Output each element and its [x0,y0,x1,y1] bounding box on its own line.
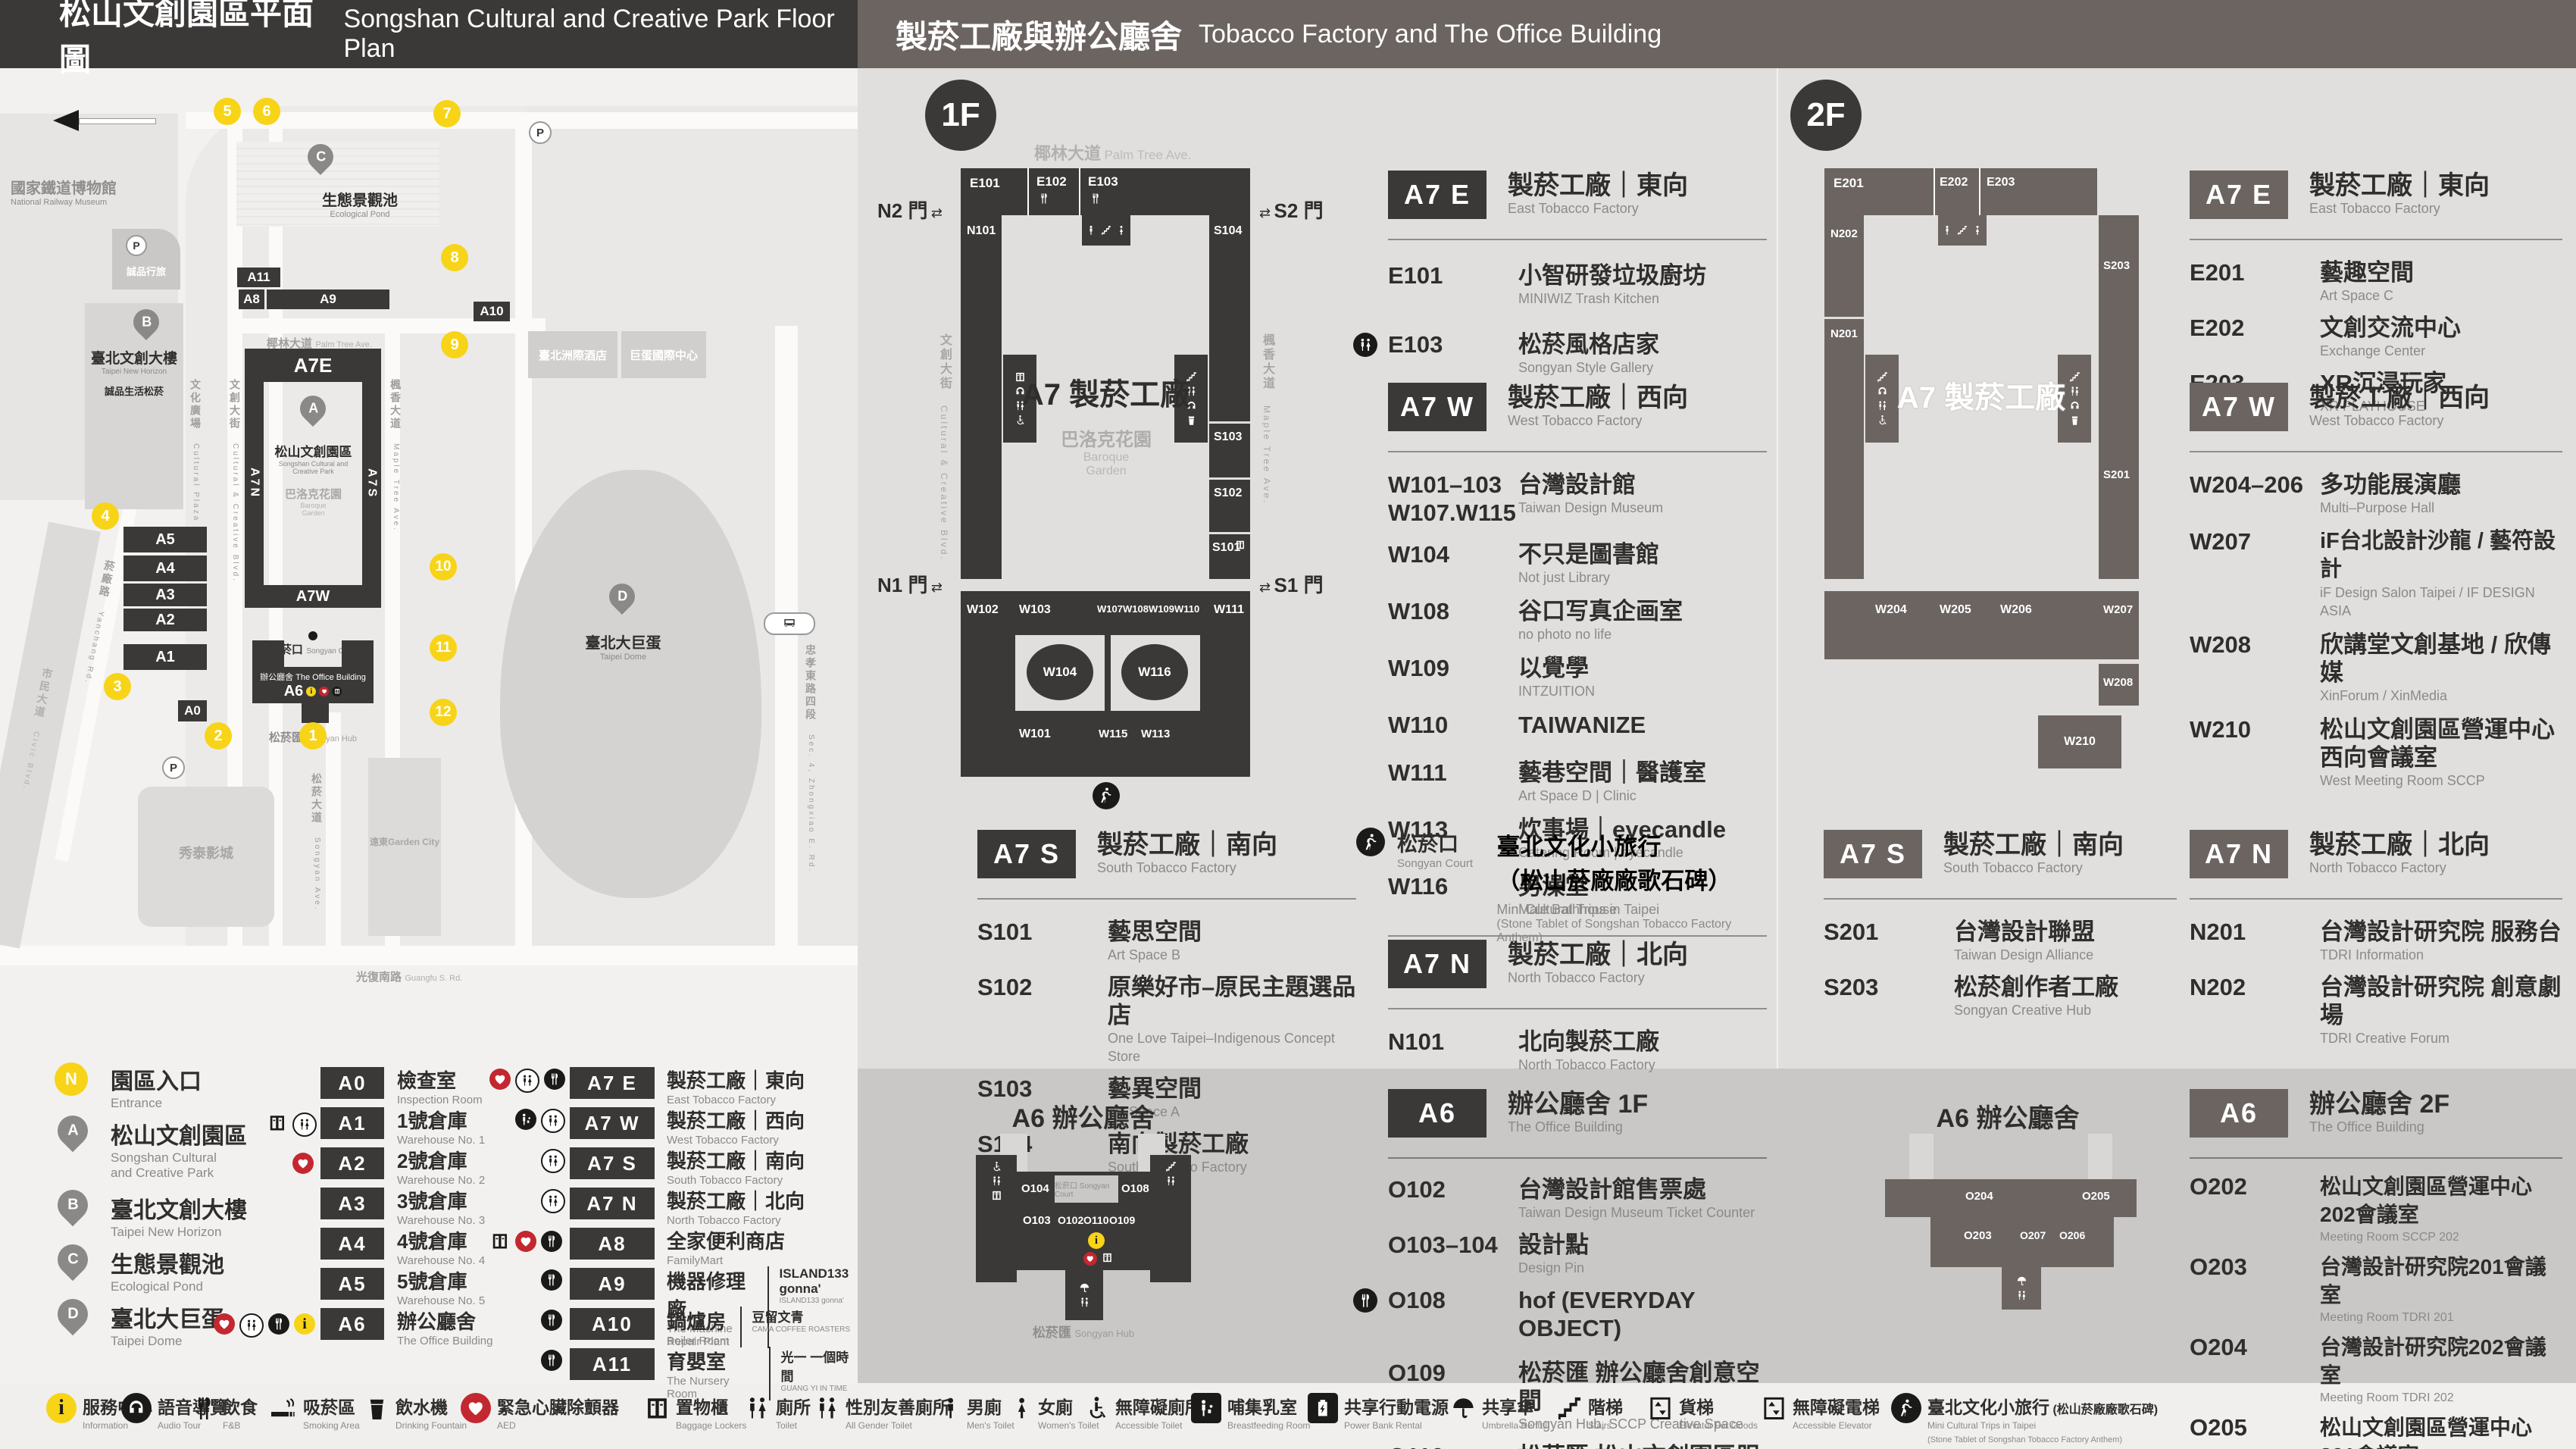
maple-label-1f: 楓香大道 Maple Tree Ave. [1258,333,1276,505]
map2f-bottom-band [1824,591,2099,659]
restaurant-icon [1353,1288,1377,1313]
legend-a7e-label: 製菸工廠｜東向East Tobacco Factory [667,1066,805,1106]
road-v-zhongxiao [775,326,798,946]
all-gender-toilet-icon [812,1393,841,1423]
legend-badge-a7n: A7 N [570,1188,655,1219]
facility-item: 無障礙電梯Accessible Elevator [1759,1393,1880,1432]
room-e102: E102 [1036,174,1067,189]
entrance-7: 7 [433,100,461,127]
legend-a5-label: 5號倉庫Warehouse No. 5 [397,1266,485,1307]
aed-icon [515,1231,536,1252]
guangfu-label: 光復南路 Guangfu S. Rd. [356,969,462,984]
map1f-col-gap [1209,477,1250,480]
legend-a6-icons: i [214,1313,315,1338]
facility-item: 哺集乳室Breastfeeding Room [1191,1393,1310,1432]
accessible-toilet-icon [1082,1393,1111,1423]
badge-a7w-2f: A7 W [2190,383,2288,431]
room-o207: O207 [2020,1229,2046,1241]
a6-1f-court-inset: 松菸口 Songyan Court [1055,1175,1118,1203]
map2f-w210-block: W210 [2038,715,2121,768]
a6-1f-left-wing [976,1155,1017,1282]
toilet-icon [515,1069,539,1093]
legend-pin-d-label: 臺北大巨蛋Taipei Dome [111,1300,224,1349]
showtime-label: 秀泰影城 [145,843,267,862]
room-w107: W107 [1097,603,1123,615]
entrance-6: 6 [253,98,280,125]
room-w110: W110 [1174,603,1199,615]
map1f-col-gap [1209,421,1250,424]
room-n202: N202 [1830,227,1858,240]
facility-item: 共享行動電源Power Bank Rental [1308,1393,1449,1432]
room-w109: W109 [1149,603,1174,615]
section-2f-a7e: A7 E 製菸工廠｜東向East Tobacco Factory E201藝趣空… [2190,171,2562,415]
legend-badge-a3: A3 [320,1188,384,1219]
legend-a7s-label: 製菸工廠｜南向South Tobacco Factory [667,1146,805,1187]
legend-a10-label: 鍋爐房Boiler Room 豆留文青CAMA COFFEE ROASTERS [667,1307,850,1347]
section-1f-a7n: A7 N 製菸工廠｜北向North Tobacco Factory N101北向… [1388,940,1767,1074]
list-item: S101藝思空間Art Space B [977,918,1356,964]
legend-a9-icons [541,1269,562,1291]
legend-entrance-label: 園區入口Entrance [111,1062,202,1111]
room-o104: O104 [1021,1182,1049,1195]
songyan-court-icon [1093,782,1120,809]
fnb-icon [189,1393,218,1423]
map2f-top-stub [1938,215,1987,246]
legend-badge-a2: A2 [320,1147,384,1179]
a6-court-label: 松菸口 Songyan Court [1055,1179,1118,1199]
list-item: O108hof (EVERYDAY OBJECT) [1388,1286,1767,1342]
railway-museum-label: 國家鐵道博物館 National Railway Museum [11,176,117,207]
legend-badge-a4: A4 [320,1228,384,1260]
divider [977,898,1356,900]
room-o205: O205 [2082,1190,2110,1203]
map1f-gate-road [947,579,1265,591]
divider [2190,898,2562,900]
eslite-hotel-block [112,229,180,289]
room-w104-oval: W104 [1027,644,1093,700]
facility-item: 緊急心臟除顫器AED [461,1393,619,1432]
badge-a7n: A7 N [1388,940,1487,988]
room-e101: E101 [970,176,1000,191]
header-right-title-en: Tobacco Factory and The Office Building [1199,20,1662,49]
header-left-title-en: Songshan Cultural and Creative Park Floo… [343,5,858,64]
divider [2190,1157,2562,1159]
new-horizon-block [85,303,183,509]
entrance-9: 9 [441,331,468,358]
legend-pin-b: B [52,1184,95,1227]
room-w101: W101 [1019,728,1051,741]
toilet-icon [541,1189,565,1213]
office-stub [302,703,329,723]
aed-icon [461,1393,491,1423]
a6-2f-pillar [1909,1134,1934,1184]
toilet-icon [541,1149,565,1173]
legend-a2-label: 2號倉庫Warehouse No. 2 [397,1146,485,1187]
room-o109: O109 [1109,1214,1135,1226]
room-w102: W102 [967,603,999,617]
legend-a0-label: 檢查室Inspection Room [397,1066,483,1106]
divider [1388,451,1767,452]
lockers-icon [642,1393,671,1423]
list-item: E101 小智研發垃圾廚坊MINIWIZ Trash Kitchen [1388,261,1767,308]
room-o204: O204 [1965,1190,1993,1203]
gate-s1: ⇄ S1 門 [1259,570,1324,598]
map1f-divider [1079,168,1080,215]
entrance-12: 12 [430,699,457,726]
facility-item: 男廁Men's Toilet [938,1393,1014,1432]
floor-1f-circle: 1F [925,80,996,151]
drinking-fountain-icon [362,1393,391,1423]
room-w108: W108 [1123,603,1149,615]
block-a7e: A7E [245,349,381,382]
park-pin-label: 松山文創園區 Songshan Cultural and Creative Pa… [255,441,372,517]
locker-icon [267,1113,288,1134]
facility-item: 階梯Stairs [1555,1393,1623,1432]
list-item: W110TAIWANIZE [1388,711,1767,739]
legend-badge-a0: A0 [320,1067,384,1099]
aed-icon [214,1313,235,1335]
badge-a7w: A7 W [1388,383,1487,431]
room-o102: O102 [1058,1214,1083,1226]
palm-ave-label-1f: 椰林大道 Palm Tree Ave. [1034,140,1191,164]
block-a0: A0 [178,700,207,721]
room-w206: W206 [2000,603,2032,617]
list-item: S203松菸創作者工廠Songyan Creative Hub [1824,973,2177,1019]
a6-2f-pillar [2088,1134,2112,1184]
womens-toilet-icon [1009,1393,1035,1423]
map2f-divider [1934,168,1935,215]
cultural-trip-icon [1891,1393,1921,1423]
block-a1: A1 [123,644,207,670]
legend-a7n-label: 製菸工廠｜北向North Tobacco Factory [667,1186,805,1227]
badge-a6-2f: A6 [2190,1089,2288,1138]
entrance-10: 10 [430,553,457,581]
section-2f-a7s: A7 S 製菸工廠｜南向South Tobacco Factory S201台灣… [1824,830,2177,1019]
facility-item: 臺北文化小旅行 (松山菸廠廠歌石碑) Mini Cultural Trips i… [1891,1393,2158,1446]
list-item: W207iF台北設計沙龍 / 藝符設計iF Design Salon Taipe… [2190,527,2562,620]
list-item: W108谷口写真企画室no photo no life [1388,597,1767,643]
compass-north-icon [53,110,79,131]
list-item: O203台灣設計研究院201會議室Meeting Room TDRI 201 [2190,1253,2562,1327]
toilet-icon [1353,333,1377,357]
legend-badge-a7e: A7 E [570,1067,655,1099]
songyan-court-icon [1356,828,1385,856]
toilet-icon [292,1113,317,1137]
legend-pin-c: C [52,1238,95,1282]
stairs-icon [1555,1393,1583,1423]
legend-pin-d: D [52,1293,95,1336]
legend-a7s-icons [541,1149,565,1173]
legend-a2-icons [292,1153,314,1174]
map1f-top-stub [1082,215,1130,246]
a6-2f-bottom-bar [1930,1217,2114,1267]
goods-elevator-icon [1646,1393,1674,1423]
gate-n1: N1 門 ⇄ [877,570,943,598]
new-horizon-label: 臺北文創大樓 Taipei New Horizon 誠品生活松菸 [80,347,189,398]
room-n201: N201 [1830,327,1858,340]
list-item: O102台灣設計館售票處Taiwan Design Museum Ticket … [1388,1175,1767,1222]
road-v-songyan [326,712,341,946]
room-s203: S203 [2103,259,2130,272]
legend-badge-a9: A9 [570,1268,655,1300]
mens-toilet-icon [938,1393,964,1423]
locker-icon [1102,1252,1113,1267]
a6-2f-map-title: A6 辦公廳舍 [1909,1097,2106,1134]
list-item: N201台灣設計研究院 服務台TDRI Information [2190,918,2562,964]
list-item: W204–206多功能展演廳Multi–Purpose Hall [2190,471,2562,517]
legend-badge-a7w: A7 W [570,1107,655,1139]
legend-a1-label: 1號倉庫Warehouse No. 1 [397,1106,485,1147]
parking-icon-3: P [529,121,552,144]
room-e201: E201 [1834,176,1864,191]
section-2f-a7n: A7 N 製菸工廠｜北向North Tobacco Factory N201台灣… [2190,830,2562,1047]
block-a9: A9 [267,289,389,309]
room-w111: W111 [1214,603,1244,617]
map1f-center-label: A7 製菸工廠 巴洛克花園 Baroque Garden [1015,370,1197,478]
a6-1f-right-wing [1150,1155,1191,1282]
divider [1388,1157,1767,1159]
bus-stop-icon [764,612,815,635]
legend-a11-icons [541,1350,562,1371]
info-icon: i [46,1393,77,1423]
plaza-label: 文化廣場 Cultural Plaza [188,379,203,522]
map2f-gate-road [1811,579,2152,591]
ccb-label-1f: 文創大街 Cultural & Creative Blvd. [935,333,953,562]
gate-s2: ⇄ S2 門 [1259,196,1324,224]
map1f-left-col [961,215,1002,579]
block-a10: A10 [474,302,510,321]
legend-badge-a8: A8 [570,1228,655,1260]
facility-item: 無障礙廁所Accessible Toilet [1082,1393,1202,1432]
room-o203: O203 [1964,1229,1992,1242]
badge-a7s-2f: A7 S [1824,830,1922,878]
audio-tour-icon [121,1393,152,1423]
header-right-title-cjk: 製菸工廠與辦公廳舍 [896,11,1182,58]
legend-a8-icons [489,1231,562,1252]
room-w208: W208 [2103,676,2133,689]
a6-1f-stub [1065,1270,1103,1320]
badge-a7s: A7 S [977,830,1076,878]
map1f-bottom-block [961,591,1250,777]
office-label: 辦公廳舍 The Office Building [260,671,366,683]
list-item: W101–103W107.W115 台灣設計館Taiwan Design Mus… [1388,471,1767,527]
office-wing-left [252,640,284,669]
entrance-2: 2 [205,722,232,750]
park-map: 國家鐵道博物館 National Railway Museum C 生態景觀池 … [0,68,858,1069]
map2f-divider [1979,168,1980,215]
locker-icon [1235,540,1246,554]
umbrella-icon [1449,1393,1477,1423]
block-a2: A2 [123,609,207,631]
legend-a8-label: 全家便利商店FamilyMart [667,1226,785,1267]
room-w205: W205 [1940,603,1971,617]
legend-a3-label: 3號倉庫Warehouse No. 3 [397,1186,485,1227]
office-wing-right [342,640,374,669]
a6-1f-map-title: A6 辦公廳舍 [985,1097,1182,1134]
facility-item: 性別友善廁所All Gender Toilet [812,1393,950,1432]
badge-a6-1f: A6 [1388,1089,1487,1138]
a6-1f-hub-label: 松菸匯 Songyan Hub [1008,1322,1159,1341]
block-a11: A11 [237,268,280,287]
room-o108: O108 [1121,1182,1149,1195]
list-item: W210松山文創園區營運中心西向會議室West Meeting Room SCC… [2190,715,2562,790]
legend-a7e-icons [489,1069,565,1093]
facility-strip: i 服務中心Information 語音導覽Audio Tour 飲食F&B 吸… [0,1393,2576,1446]
room-w116-oval: W116 [1121,644,1188,700]
section-1f-court: 松菸口Songyan Court 臺北文化小旅行 （松山菸廠廠歌石碑） Mini… [1356,828,1769,945]
legend-a4-label: 4號倉庫Warehouse No. 4 [397,1226,485,1267]
nursing-icon [515,1109,536,1130]
entrance-5: 5 [214,98,241,125]
facility-item: 飲食F&B [189,1393,258,1432]
maple-label: 楓香大道 Maple Tree Ave. [388,379,403,532]
locker-icon [332,687,342,696]
locker-icon [489,1231,511,1252]
legend-a10-icons [541,1310,562,1331]
room-o103: O103 [1023,1214,1051,1227]
divider [1824,898,2177,900]
floor-plan-poster: 松山文創園區平面圖 Songshan Cultural and Creative… [0,0,2576,1449]
map1f-right-col [1209,215,1250,579]
list-item: S102原樂好市–原民主題選品店One Love Taipei–Indigeno… [977,973,1356,1066]
legend-badge-a11: A11 [570,1348,655,1380]
restaurant-icon [541,1231,562,1252]
block-a3: A3 [123,584,207,606]
list-item: N101北向製菸工廠North Tobacco Factory [1388,1028,1767,1074]
room-s104: S104 [1214,224,1242,238]
entrance-3: 3 [104,673,131,700]
room-o110: O110 [1083,1214,1108,1226]
legend-a6-label: 辦公廳舍The Office Building [397,1307,492,1347]
list-item: O103–104設計點Design Pin [1388,1231,1767,1277]
office-building-block: 辦公廳舍 The Office Building A6i [252,667,374,703]
list-item: W111藝巷空間｜醫護室Art Space D | Clinic [1388,759,1767,805]
list-item: S201台灣設計聯盟Taiwan Design Alliance [1824,918,2177,964]
facility-item: 貨梯Elevator For Goods [1646,1393,1758,1432]
room-n101: N101 [967,224,996,238]
zhongxiao-label: 忠孝東路四段 Sec. 4, Zhongxiao E. Rd. [803,644,818,873]
list-item: W109以覺學INTZUITION [1388,654,1767,700]
road-bottom [0,946,858,965]
dome-center-block: 巨蛋國際中心 [621,331,706,378]
facility-item: 共享傘Umbrella Rental [1449,1393,1547,1432]
badge-a7n-2f: A7 N [2190,830,2288,878]
block-a4: A4 [123,556,207,581]
entrance-11: 11 [430,634,457,662]
restaurant-icon [1089,192,1102,208]
restaurant-icon [541,1350,562,1371]
restaurant-icon [268,1313,289,1335]
pond-label: 生態景觀池 Ecological Pond [295,188,424,219]
eslite-hotel-label: 誠品行旅 [115,264,177,278]
intercontinental-block: 臺北洲際酒店 [528,331,617,378]
block-a5: A5 [123,527,207,552]
panel-divider [1777,68,1778,1069]
baroque-garden-label: 巴洛克花園 Baroque Garden [255,486,372,517]
facility-item: 吸菸區Smoking Area [267,1393,360,1432]
section-2f-a7w: A7 W 製菸工廠｜西向West Tobacco Factory W204–20… [2190,383,2562,790]
parking-icon-2: P [162,756,185,779]
legend-pin-a-label: 松山文創園區Songshan Culturaland Creative Park [111,1117,247,1181]
facility-item: 置物櫃Baggage Lockers [642,1393,746,1432]
legend-badge-a10: A10 [570,1308,655,1340]
room-s102: S102 [1214,487,1242,500]
facility-item: 飲水機Drinking Fountain [362,1393,467,1432]
legend-pin-a: A [52,1109,95,1153]
room-s201: S201 [2103,468,2130,481]
list-item: O202松山文創園區營運中心202會議室Meeting Room SCCP 20… [2190,1172,2562,1247]
room-w103: W103 [1019,603,1051,617]
map1f-col-gap [1209,532,1250,534]
room-w204: W204 [1875,603,1907,617]
map2f-w207-col [2099,591,2139,659]
entrance-4: 4 [92,502,119,530]
divider [2190,239,2562,240]
palm-ave-label: 椰林大道 Palm Tree Ave. [267,335,372,351]
legend-pin-c-label: 生態景觀池Ecological Pond [111,1246,224,1294]
parking-icon-1: P [126,235,147,256]
room-s103: S103 [1214,430,1242,444]
legend-badge-a1: A1 [320,1107,384,1139]
map2f-col-gap [1824,317,1864,319]
toilet-icon [742,1393,771,1423]
room-e203: E203 [1987,176,2015,189]
list-item: W104不只是圖書館Not just Library [1388,540,1767,587]
aed-icon [489,1069,511,1090]
legend-pin-b-label: 臺北文創大樓Taipei New Horizon [111,1191,247,1240]
divider [1388,1008,1767,1009]
gate-n2: N2 門 ⇄ [877,196,943,224]
map2f-center-label: A7 製菸工廠 [1894,373,2068,417]
info-icon: i [294,1313,315,1335]
header-right: 製菸工廠與辦公廳舍 Tobacco Factory and The Office… [858,0,2576,68]
legend-badge-a5: A5 [320,1268,384,1300]
section-1f-a7e: A7 E 製菸工廠｜東向East Tobacco Factory E101 小智… [1388,171,1767,377]
map1f-divider [1027,168,1029,215]
smoking-icon [267,1393,299,1423]
garden-city-label: 遠東Garden City [368,835,441,848]
aed-icon [319,687,329,696]
legend-a7w-label: 製菸工廠｜西向West Tobacco Factory [667,1106,805,1147]
restaurant-icon [544,1069,565,1090]
room-w113: W113 [1141,728,1170,740]
list-item: E202文創交流中心Exchange Center [2190,314,2562,360]
breastfeeding-icon [1191,1393,1221,1423]
toilet-icon [541,1109,565,1133]
a6-2f-stub [2002,1267,2041,1310]
info-icon: i [1088,1232,1105,1249]
entrance-8: 8 [441,244,468,271]
divider [1388,239,1767,240]
badge-a7e-2f: A7 E [2190,171,2288,219]
room-o206: O206 [2059,1229,2085,1241]
toilet-icon [239,1313,264,1338]
list-item: E103 松菸風格店家Songyan Style Gallery [1388,330,1767,377]
badge-a7e: A7 E [1388,171,1487,219]
aed-icon [292,1153,314,1174]
restaurant-icon [1038,192,1050,208]
info-icon: i [306,687,316,696]
legend-a7n-icons [541,1189,565,1213]
legend-entrance-circle: N [55,1062,88,1096]
room-w115: W115 [1099,728,1127,740]
floor-2f-circle: 2F [1790,80,1862,151]
legend-badge-a6: A6 [320,1308,384,1340]
header-left: 松山文創園區平面圖 Songshan Cultural and Creative… [0,0,858,68]
legend-badge-a7s: A7 S [570,1147,655,1179]
songyan-court-dot [308,631,317,640]
list-item: N202台灣設計研究院 創意劇場TDRI Creative Forum [2190,973,2562,1047]
